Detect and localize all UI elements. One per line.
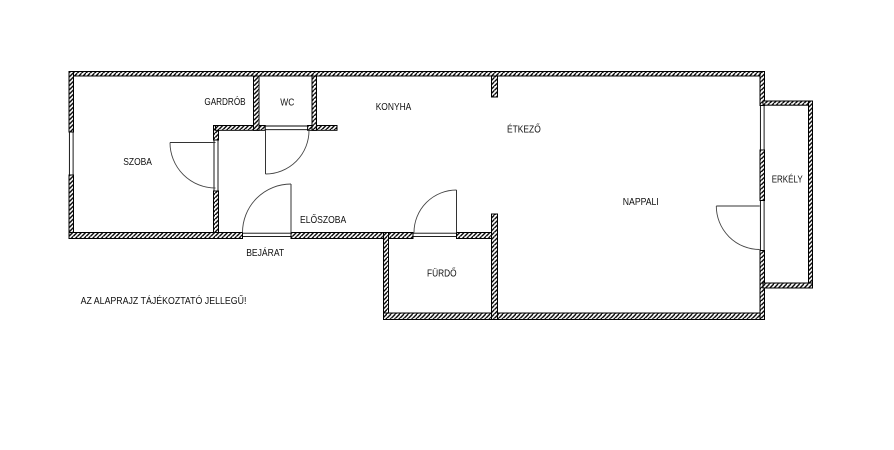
svg-text:FÜRDŐ: FÜRDŐ xyxy=(427,266,457,280)
svg-text:ÉTKEZŐ: ÉTKEZŐ xyxy=(507,122,541,136)
svg-text:KONYHA: KONYHA xyxy=(376,102,412,113)
svg-text:NAPPALI: NAPPALI xyxy=(623,197,659,208)
svg-text:GARDRÓB: GARDRÓB xyxy=(204,95,245,108)
svg-text:SZOBA: SZOBA xyxy=(123,157,152,168)
svg-text:AZ ALAPRAJZ TÁJÉKOZTATÓ JELLEG: AZ ALAPRAJZ TÁJÉKOZTATÓ JELLEGŰ! xyxy=(81,293,247,307)
svg-text:WC: WC xyxy=(280,97,295,108)
svg-text:BEJÁRAT: BEJÁRAT xyxy=(246,246,285,259)
svg-text:ERKÉLY: ERKÉLY xyxy=(772,173,803,186)
svg-text:ELŐSZOBA: ELŐSZOBA xyxy=(300,212,346,226)
